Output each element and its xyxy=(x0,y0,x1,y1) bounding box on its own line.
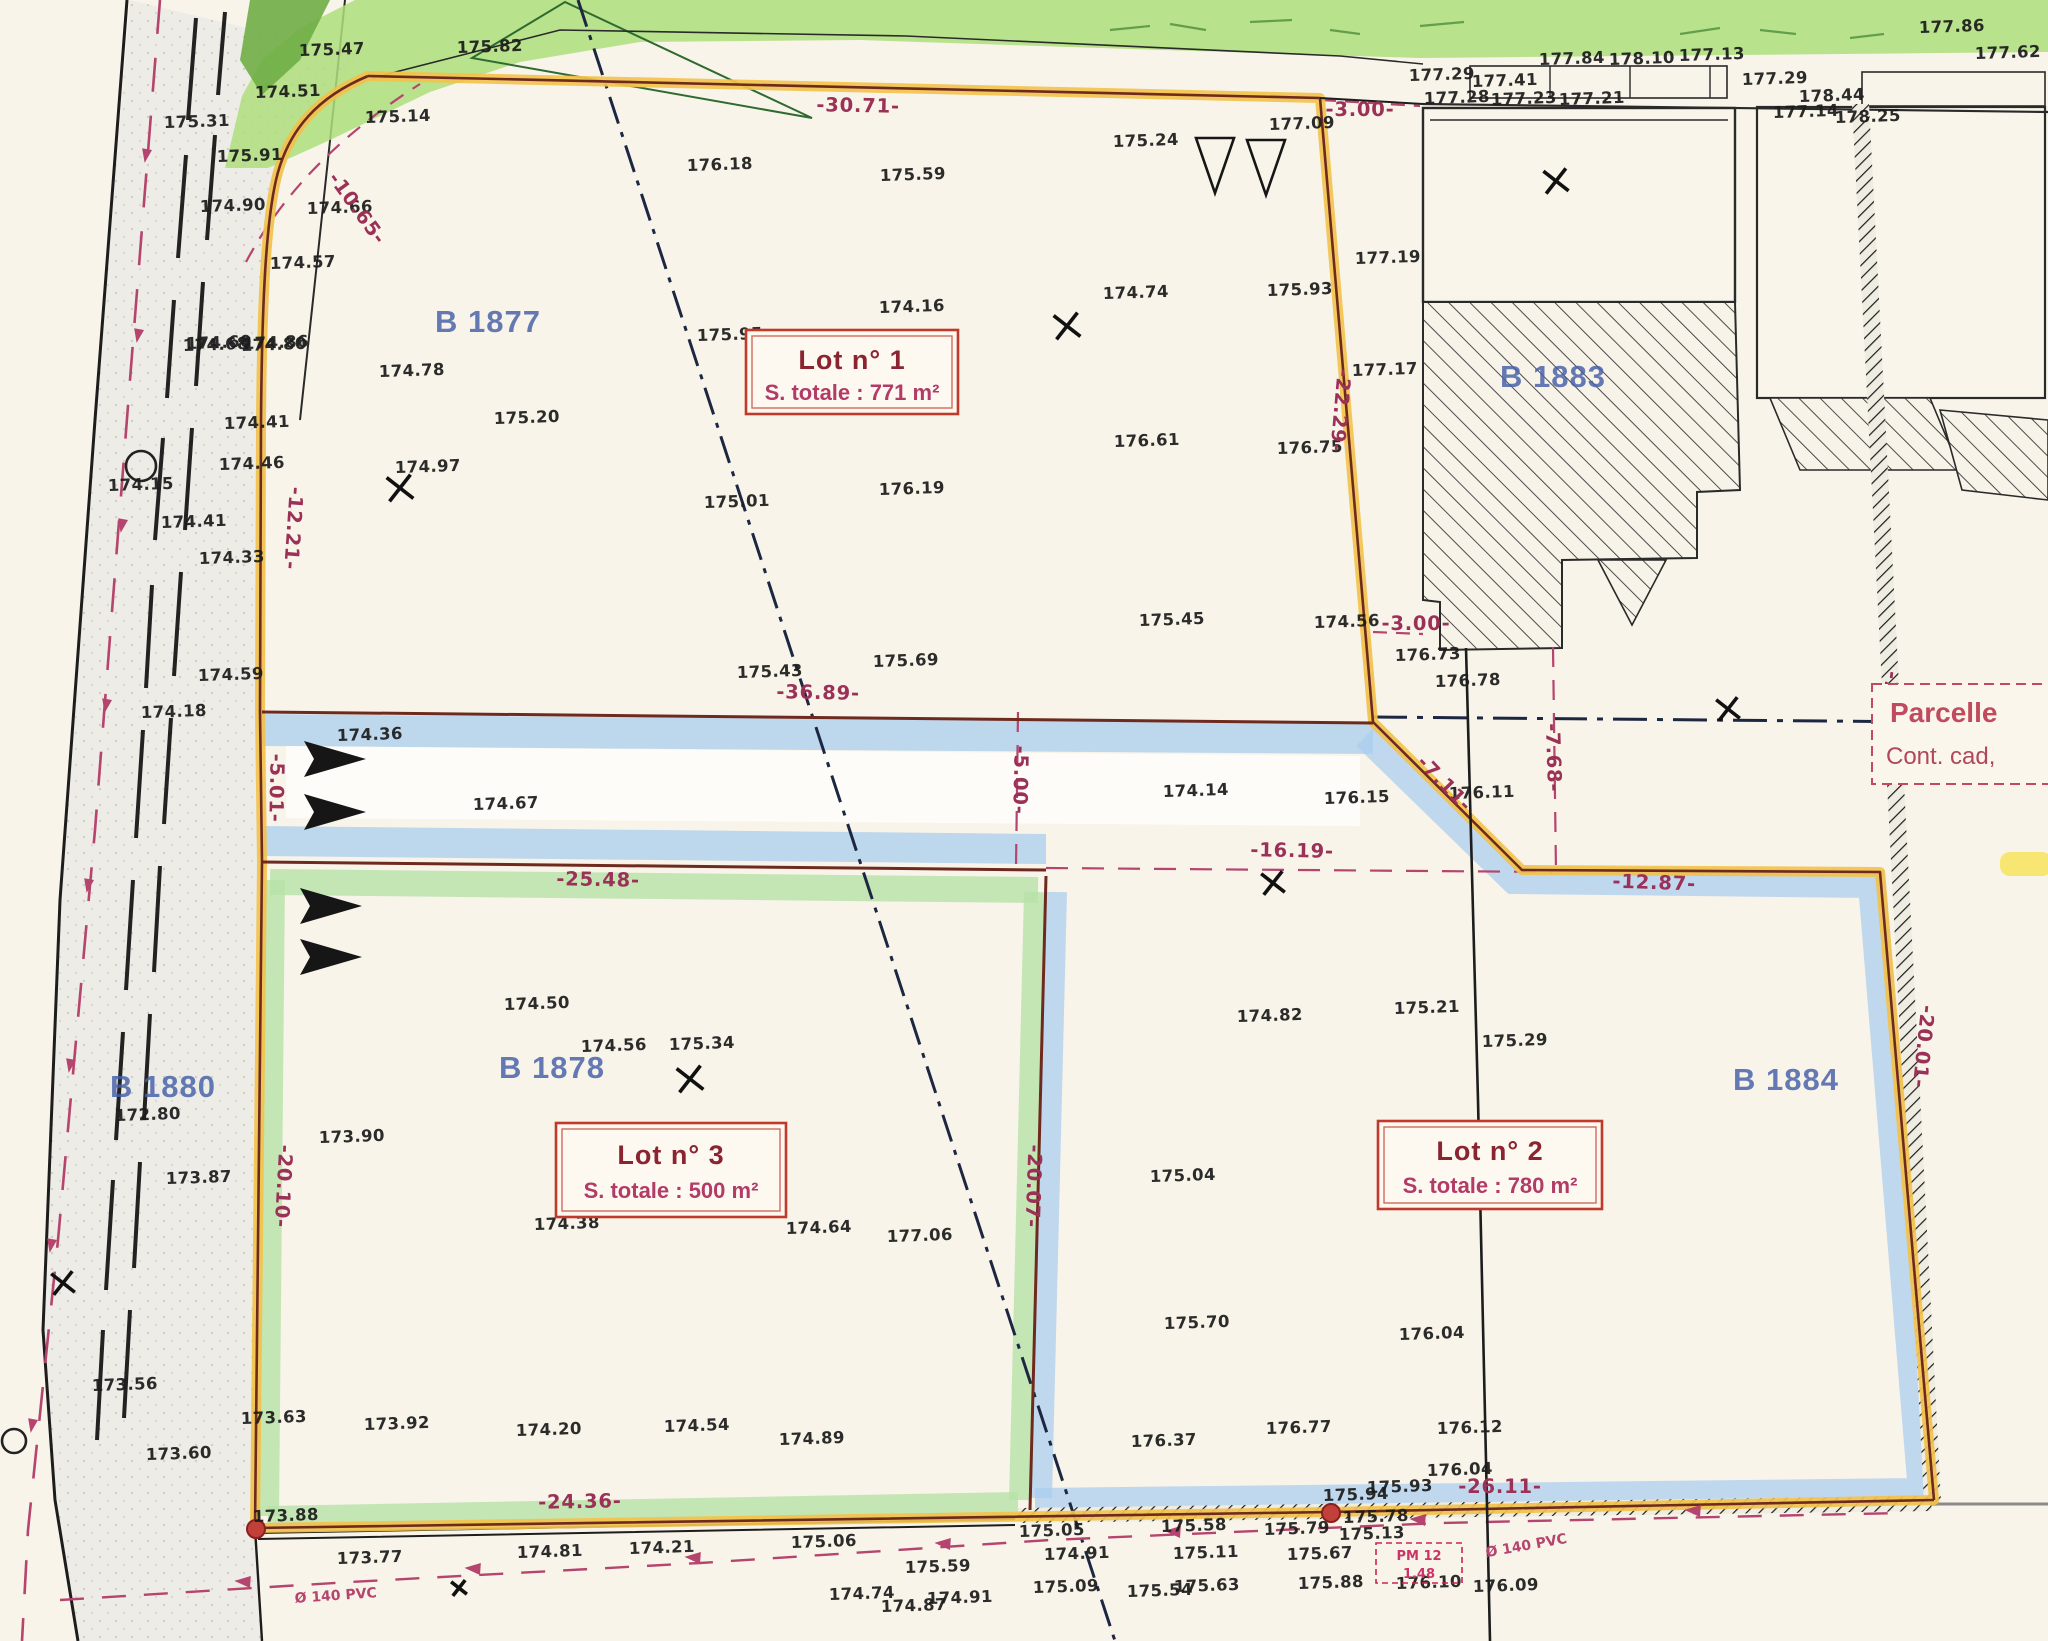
dimension-label: -3.00- xyxy=(1325,98,1394,121)
spot-height: 175.93 xyxy=(1366,1476,1433,1497)
spot-height: 173.77 xyxy=(336,1547,403,1568)
lot2-label-box: Lot n° 2 S. totale : 780 m² xyxy=(1378,1121,1602,1209)
spot-height: 174.91 xyxy=(926,1587,993,1608)
spot-height: 174.14 xyxy=(1162,780,1229,801)
spot-height: 174.16 xyxy=(878,296,945,317)
spot-height: 174.90 xyxy=(199,195,266,216)
b1883-courtyard xyxy=(1423,108,1735,302)
spot-height: 174.82 xyxy=(1236,1005,1303,1026)
spot-height: 176.15 xyxy=(1323,787,1390,808)
spot-height: 173.88 xyxy=(252,1505,319,1526)
spot-height: 175.70 xyxy=(1163,1312,1230,1333)
spot-height: 175.01 xyxy=(703,491,770,512)
spot-height: 174.74 xyxy=(1102,282,1169,303)
spot-height: 175.04 xyxy=(1149,1165,1216,1186)
spot-height: 176.77 xyxy=(1265,1417,1332,1438)
dimension-label: -24.36- xyxy=(538,1489,622,1513)
parcel-label-b1880: B 1880 xyxy=(110,1069,216,1104)
spot-height: 177.14 xyxy=(1772,101,1839,122)
spot-height: 175.14 xyxy=(364,106,431,127)
spot-height: 175.69 xyxy=(872,650,939,671)
spot-height: 175.09 xyxy=(1032,1576,1099,1597)
lot2-title: Lot n° 2 xyxy=(1436,1136,1543,1166)
spot-height: 174.57 xyxy=(269,252,336,273)
spot-height: 174.78 xyxy=(378,360,445,381)
dimension-label: -5.01- xyxy=(264,753,288,823)
spot-height: 175.05 xyxy=(1018,1520,1085,1541)
parcelle-note-line2: Cont. cad, xyxy=(1886,743,1995,770)
spot-height: 177.13 xyxy=(1678,44,1745,65)
spot-height: 175.24 xyxy=(1112,130,1179,151)
spot-height: 173.92 xyxy=(363,1413,430,1434)
spot-height: 174.89 xyxy=(778,1428,845,1449)
dimension-label: -20.07- xyxy=(1021,1144,1047,1228)
spot-height: 176.73 xyxy=(1394,644,1461,665)
lot1-label-box: Lot n° 1 S. totale : 771 m² xyxy=(746,330,958,414)
b1883-wing-hatched xyxy=(1770,398,1960,470)
spot-height: 175.79 xyxy=(1263,1518,1330,1539)
spot-height: 177.62 xyxy=(1974,42,2041,63)
spot-height: 175.91 xyxy=(216,145,283,166)
dimension-label: -26.11- xyxy=(1458,1475,1541,1498)
parcel-label-b1884: B 1884 xyxy=(1733,1062,1839,1097)
spot-height: 175.93 xyxy=(1266,279,1333,300)
spot-height: 175.11 xyxy=(1172,1542,1239,1563)
spot-height: 174.64 xyxy=(785,1217,852,1238)
spot-height: 174.51 xyxy=(254,81,321,102)
spot-height: 173.63 xyxy=(240,1407,307,1428)
lot2-area: S. totale : 780 m² xyxy=(1403,1173,1578,1198)
spot-height: 174.56 xyxy=(1313,611,1380,632)
spot-height: 175.29 xyxy=(1481,1030,1548,1051)
spot-height: 176.19 xyxy=(878,478,945,499)
spot-height: 176.78 xyxy=(1434,670,1501,691)
spot-height: 175.45 xyxy=(1138,609,1205,630)
spot-height: 174.33 xyxy=(198,547,265,568)
spot-height: 177.28 xyxy=(1423,87,1490,108)
spot-height: 175.88 xyxy=(1297,1572,1364,1593)
lot1-title: Lot n° 1 xyxy=(798,345,905,375)
parcelle-note-line1: Parcelle xyxy=(1890,697,1997,728)
spot-height: 174.41 xyxy=(160,511,227,532)
spot-height: 174.21 xyxy=(628,1537,695,1558)
dimension-label: -3.00- xyxy=(1381,612,1450,635)
b1883-north-building xyxy=(1757,107,2045,398)
pm-note-line2: 1.48 xyxy=(1403,1567,1435,1582)
spot-height: 175.82 xyxy=(456,36,523,57)
dimension-label: -30.71- xyxy=(816,93,900,117)
dimension-label: -12.87- xyxy=(1612,870,1696,896)
spot-height: 176.04 xyxy=(1398,1323,1465,1344)
spot-height: 177.23 xyxy=(1490,88,1557,109)
parcel-label-b1883: B 1883 xyxy=(1500,359,1606,394)
spot-height: 173.87 xyxy=(165,1167,232,1188)
spot-height: 176.12 xyxy=(1436,1417,1503,1438)
spot-height: 175.78 xyxy=(1342,1506,1409,1527)
spot-height: 175.58 xyxy=(1160,1515,1227,1536)
dimension-label: -5.00- xyxy=(1008,745,1032,815)
spot-height: 174.15 xyxy=(107,474,174,495)
spot-height: 174.59 xyxy=(197,664,264,685)
spot-height: 178.25 xyxy=(1834,106,1901,127)
cadastral-plan: 175.47175.82174.51175.14175.91175.31174.… xyxy=(0,0,2048,1641)
lot3-area: S. totale : 500 m² xyxy=(584,1178,759,1203)
spot-height: 175.06 xyxy=(790,1531,857,1552)
yellow-blob xyxy=(2000,852,2048,876)
spot-height: 175.63 xyxy=(1173,1575,1240,1596)
lot1-area: S. totale : 771 m² xyxy=(765,380,940,405)
lot3-title: Lot n° 3 xyxy=(617,1140,724,1170)
dimension-label: -36.89- xyxy=(776,680,860,704)
spot-height: 176.37 xyxy=(1130,1430,1197,1451)
lot3-green-top xyxy=(270,882,1038,890)
spot-height: 176.61 xyxy=(1113,430,1180,451)
spot-height: 177.19 xyxy=(1354,247,1421,268)
spot-height: 174.50 xyxy=(503,993,570,1014)
dimension-label: -25.48- xyxy=(556,867,640,891)
pm-note-line1: PM 12 xyxy=(1396,1549,1441,1564)
spot-height: 174.97 xyxy=(394,456,461,477)
spot-height: 177.86 xyxy=(1918,16,1985,37)
spot-height: 172.80 xyxy=(114,1104,181,1125)
spot-height: 176.18 xyxy=(686,154,753,175)
spot-height: 178.10 xyxy=(1608,48,1675,69)
parcelle-note-box: Parcelle Cont. cad, xyxy=(1872,684,2048,784)
spot-height: 175.59 xyxy=(904,1556,971,1577)
dimension-label: -7.68- xyxy=(1541,723,1566,793)
spot-height: 175.20 xyxy=(493,407,560,428)
spot-height: 177.21 xyxy=(1558,88,1625,109)
spot-height: 175.21 xyxy=(1393,997,1460,1018)
spot-height: 176.09 xyxy=(1472,1575,1539,1596)
spot-height: 174.41 xyxy=(223,412,290,433)
spot-height: 174.20 xyxy=(515,1419,582,1440)
spot-height: 175.43 xyxy=(736,661,803,682)
spot-height: 175.59 xyxy=(879,164,946,185)
spot-height: 174.86 xyxy=(242,332,309,353)
plan-canvas: 175.47175.82174.51175.14175.91175.31174.… xyxy=(0,0,2048,1641)
parcel-label-b1877: B 1877 xyxy=(435,304,541,339)
spot-height: 174.91 xyxy=(1043,1543,1110,1564)
spot-height: 177.29 xyxy=(1741,68,1808,89)
lot3-label-box: Lot n° 3 S. totale : 500 m² xyxy=(556,1123,786,1217)
spot-height: 174.46 xyxy=(218,453,285,474)
spot-height: 177.29 xyxy=(1408,64,1475,85)
spot-height: 175.31 xyxy=(163,111,230,132)
spot-height: 175.34 xyxy=(668,1033,735,1054)
spot-height: 174.54 xyxy=(663,1415,730,1436)
spot-height: 174.36 xyxy=(336,724,403,745)
dimension-label: -16.19- xyxy=(1250,838,1334,862)
spot-height: 173.56 xyxy=(91,1374,158,1395)
spot-height: 177.17 xyxy=(1351,359,1418,380)
spot-height: 175.67 xyxy=(1286,1543,1353,1564)
parcel-label-b1878: B 1878 xyxy=(499,1050,605,1085)
spot-height: 175.47 xyxy=(298,39,365,60)
dimension-label: -20.10- xyxy=(270,1144,297,1229)
spot-height: 174.18 xyxy=(140,701,207,722)
spot-height: 173.90 xyxy=(318,1126,385,1147)
spot-height: 174.81 xyxy=(516,1541,583,1562)
spot-height: 173.60 xyxy=(145,1443,212,1464)
spot-height: 177.84 xyxy=(1538,48,1605,69)
spot-height: 174.67 xyxy=(472,793,539,814)
spot-height: 177.06 xyxy=(886,1225,953,1246)
